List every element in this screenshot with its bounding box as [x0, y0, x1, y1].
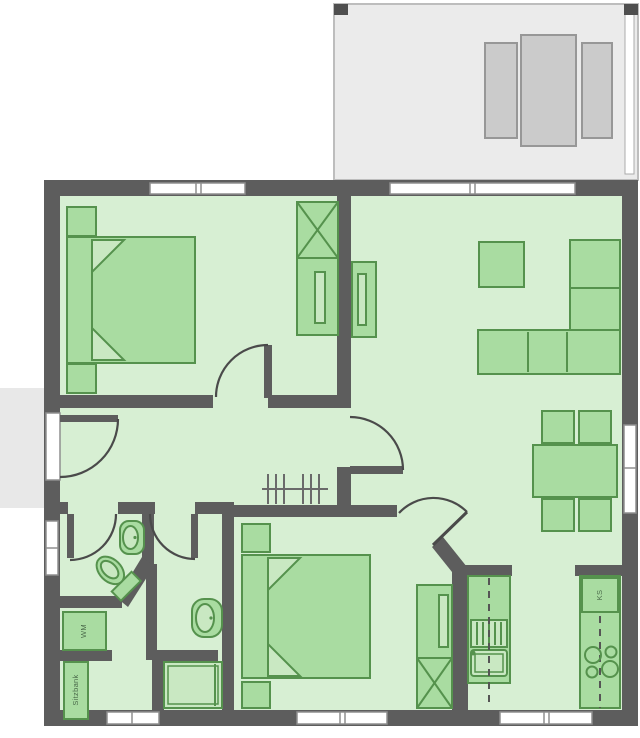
wall-shower-enclosure-top	[152, 650, 218, 661]
nightstand	[67, 207, 96, 236]
wall-bedroom2-top	[232, 505, 397, 517]
washing-machine-label: WM	[79, 624, 88, 638]
bedroom1-door-leaf	[264, 345, 272, 398]
terrace-railing	[625, 14, 634, 174]
chair	[542, 499, 574, 531]
nightstand	[67, 364, 96, 393]
wall-bedroom2-kitchen	[452, 570, 468, 710]
double-bed	[242, 555, 370, 678]
terrace-table	[521, 35, 576, 146]
wall-bedroom1-living	[337, 196, 351, 400]
shower	[164, 662, 222, 708]
dining-table	[533, 445, 617, 497]
chair	[579, 411, 611, 443]
wall-shower-left	[146, 564, 157, 660]
terrace-post	[334, 4, 348, 15]
wall-kitchen-top-right	[575, 565, 622, 576]
entry-walkway	[0, 388, 44, 508]
shower-room-door-leaf	[191, 514, 198, 558]
bench-label: Sitzbank	[71, 674, 80, 705]
wall-wc-stub	[60, 502, 68, 514]
chair	[542, 411, 574, 443]
wardrobe-handle	[315, 272, 325, 323]
window-bedroom1	[150, 183, 245, 194]
nightstand	[242, 524, 270, 552]
nightstand	[242, 682, 270, 708]
sideboard-handle	[358, 274, 366, 325]
entry-door-panel	[46, 413, 60, 480]
floor-plan: WM Sitzbank KS	[0, 0, 640, 738]
wc-door-leaf	[67, 514, 74, 558]
entry-door-leaf	[60, 415, 118, 422]
wall-wm-niche	[60, 650, 112, 661]
terrace	[334, 4, 638, 180]
wall-wc-bottom	[60, 596, 122, 608]
terrace-post	[624, 4, 638, 15]
faucet	[471, 651, 476, 656]
double-bed	[67, 237, 195, 363]
window-dining	[624, 425, 636, 513]
wall-shower-bedroom2	[222, 502, 234, 710]
wardrobe-handle	[439, 595, 448, 647]
wall-bedroom1-hall	[268, 395, 351, 408]
window-bedroom2	[297, 712, 387, 724]
terrace-lounger	[485, 43, 517, 138]
terrace-lounger	[582, 43, 612, 138]
window-hall	[107, 712, 159, 724]
wall-bedroom1-hall	[60, 395, 213, 408]
coffee-table	[479, 242, 524, 287]
chair	[579, 499, 611, 531]
window-kitchen	[500, 712, 592, 724]
living-door-leaf	[350, 466, 403, 474]
floor-plan-drawing: WM Sitzbank KS	[0, 0, 640, 738]
fridge-label: KS	[595, 590, 604, 601]
window-living-room	[390, 183, 575, 194]
